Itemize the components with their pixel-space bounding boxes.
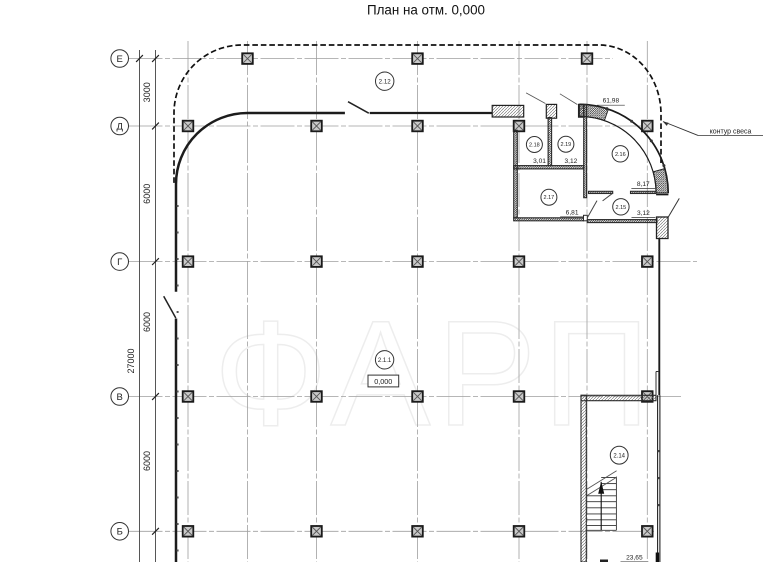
svg-text:План на отм. 0,000: План на отм. 0,000 (367, 3, 485, 18)
svg-text:Б: Б (117, 527, 123, 538)
svg-text:23,65: 23,65 (626, 554, 643, 561)
svg-text:6,81: 6,81 (566, 209, 579, 216)
svg-text:8,17: 8,17 (637, 181, 650, 188)
svg-text:контур свеса: контур свеса (710, 129, 752, 136)
svg-text:6000: 6000 (142, 451, 152, 471)
svg-text:В: В (117, 392, 123, 403)
svg-text:3,12: 3,12 (564, 158, 577, 165)
svg-text:ФАРП: ФАРП (214, 289, 657, 457)
svg-text:2.17: 2.17 (544, 195, 555, 201)
svg-text:2.12: 2.12 (379, 78, 392, 85)
svg-text:2.16: 2.16 (615, 152, 626, 158)
svg-text:6000: 6000 (142, 312, 152, 332)
svg-text:Е: Е (117, 54, 123, 65)
svg-text:3,01: 3,01 (533, 158, 546, 165)
svg-text:2.15: 2.15 (616, 205, 627, 211)
svg-text:Г: Г (117, 257, 122, 268)
svg-text:2.18: 2.18 (529, 142, 540, 148)
svg-text:2.19: 2.19 (561, 142, 572, 148)
svg-text:27000: 27000 (126, 348, 136, 373)
svg-text:61,98: 61,98 (603, 98, 620, 105)
svg-text:3,12: 3,12 (637, 210, 650, 217)
svg-text:6000: 6000 (142, 184, 152, 204)
svg-text:2.14: 2.14 (613, 453, 625, 459)
svg-text:0,000: 0,000 (374, 377, 392, 386)
svg-text:3000: 3000 (142, 82, 152, 102)
svg-text:Д: Д (116, 121, 123, 132)
svg-text:2.1.1: 2.1.1 (378, 358, 392, 364)
